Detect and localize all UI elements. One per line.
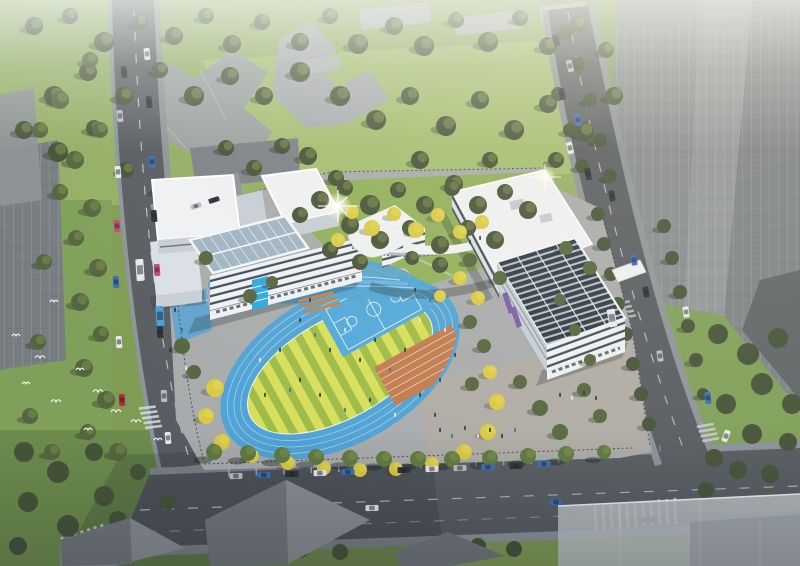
rendering-canvas bbox=[0, 0, 800, 566]
bottom-shade bbox=[0, 430, 800, 566]
campus-aerial-rendering bbox=[0, 0, 800, 566]
